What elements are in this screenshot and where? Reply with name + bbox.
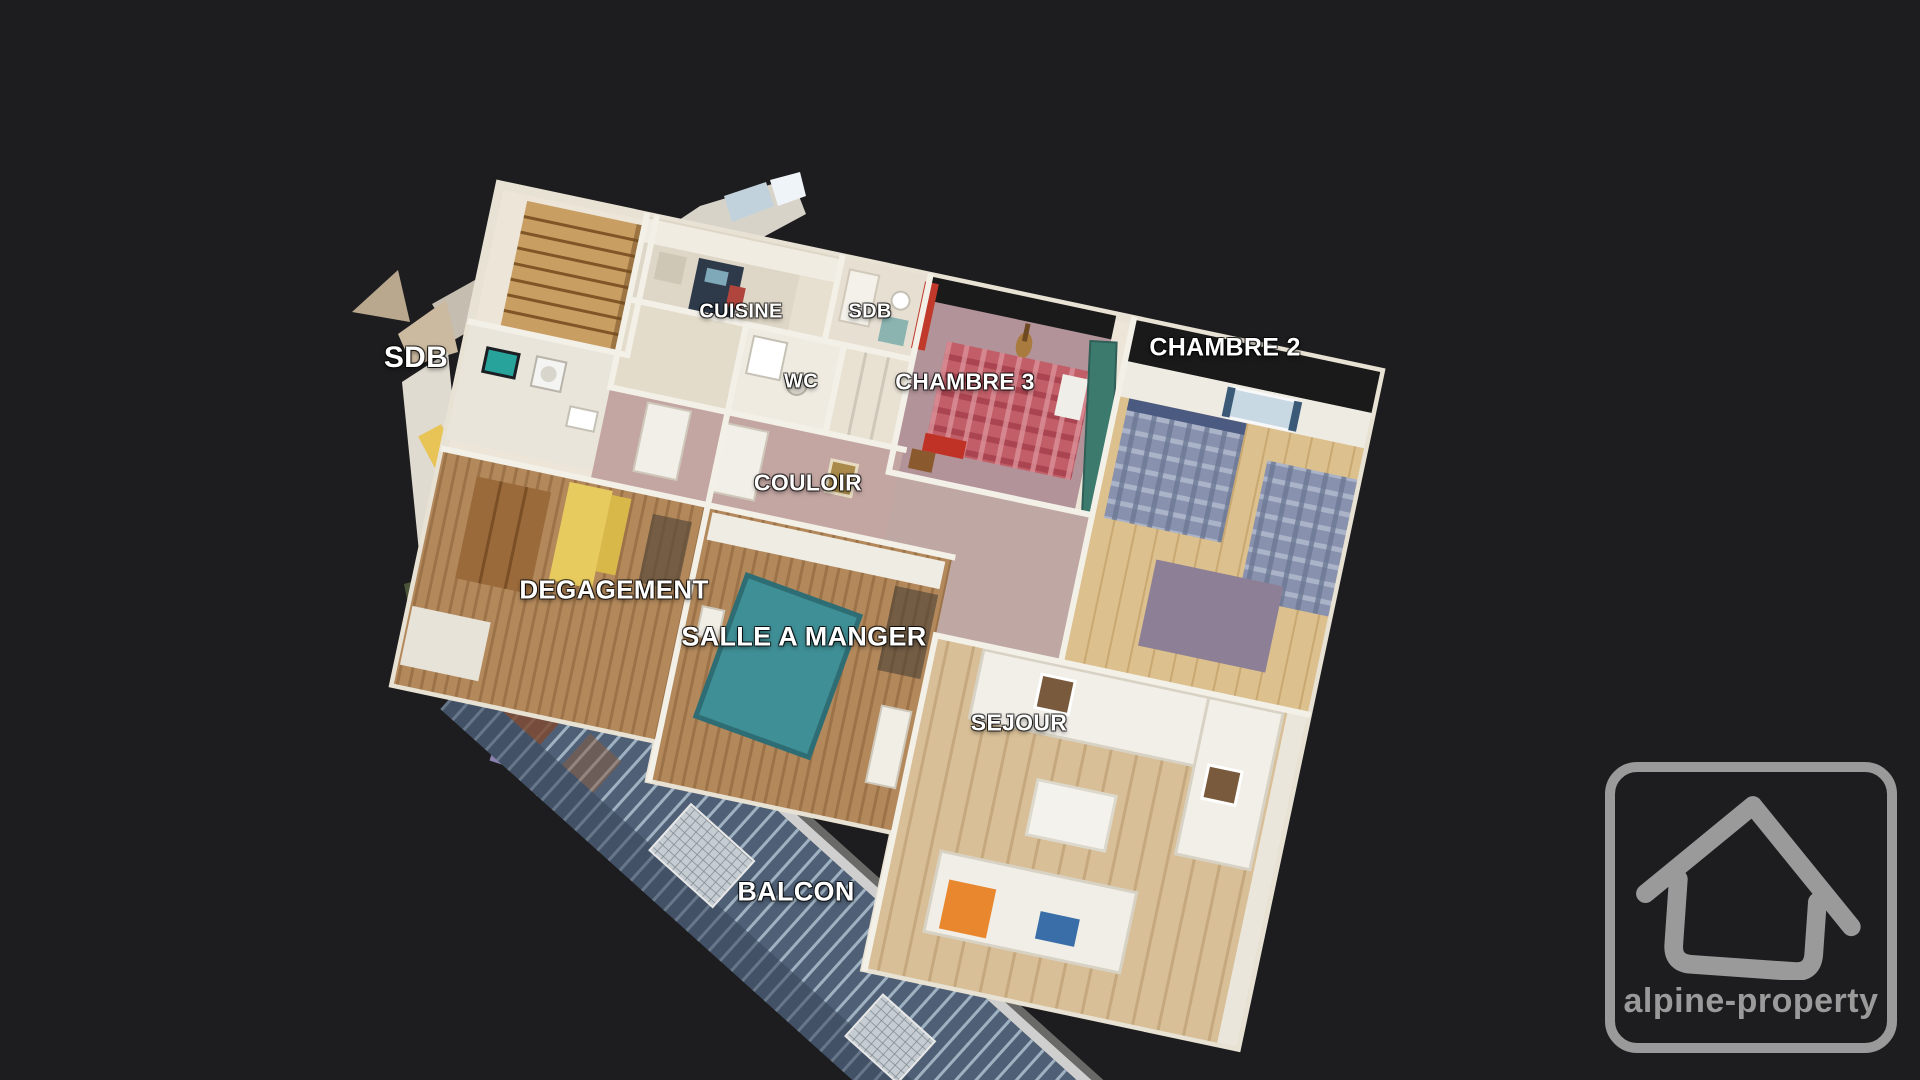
watermark-logo: alpine-property <box>1605 762 1897 1053</box>
orange-throw <box>939 879 996 938</box>
cushion <box>1035 674 1075 714</box>
dollhouse-viewer[interactable]: SDBCUISINESDBWCCHAMBRE 3CHAMBRE 2COULOIR… <box>0 0 1920 1080</box>
cushion <box>1202 765 1242 805</box>
logo-text: alpine-property <box>1615 982 1887 1021</box>
house-icon <box>1635 792 1867 980</box>
tv-screen <box>483 348 519 378</box>
